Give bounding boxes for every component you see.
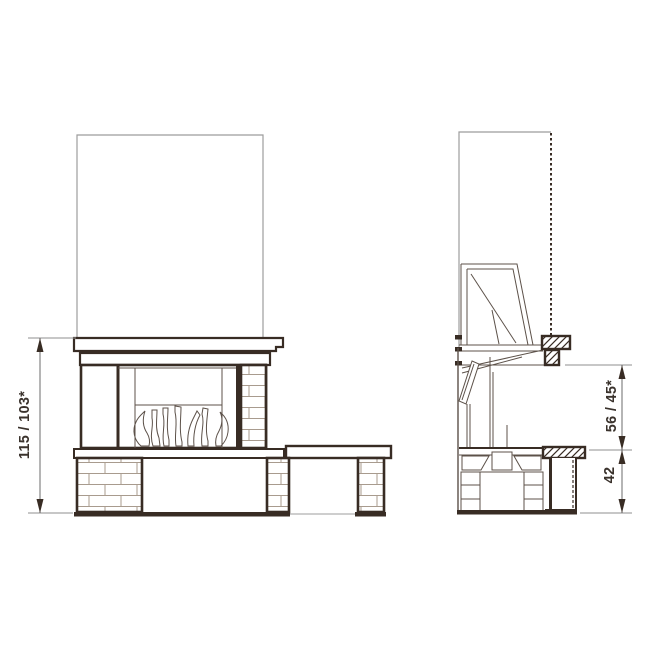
front-bench-slab-right	[286, 446, 391, 458]
front-bench-slab-left	[74, 449, 284, 458]
side-flue	[461, 264, 533, 345]
fireplace-drawing	[0, 0, 650, 650]
arrow-down-icon	[37, 499, 44, 513]
side-base-cap	[457, 510, 545, 515]
front-chimney-hood	[77, 135, 263, 340]
front-under-mantel-band	[80, 353, 270, 365]
dimension-label-side-lower: 42	[600, 445, 620, 505]
dimension-left-height	[28, 338, 76, 513]
drawing-canvas: 115 / 103* 56 / 45* 42	[0, 0, 650, 650]
front-base-cap-left	[74, 512, 290, 517]
front-base-right-pillar	[358, 458, 384, 512]
dimension-label-total-height: 115 / 103*	[15, 345, 35, 505]
side-firebox-profile	[459, 357, 507, 449]
side-mantel-section	[542, 336, 570, 365]
front-view	[74, 135, 391, 517]
side-view	[455, 132, 585, 515]
side-bench-section	[543, 447, 585, 515]
front-base-cap-right	[355, 512, 386, 517]
front-brick-column	[241, 365, 266, 448]
front-mantel-shelf	[74, 338, 283, 351]
arrow-up-icon	[37, 338, 44, 352]
side-chimney	[459, 132, 551, 348]
front-base-left-brick	[77, 458, 142, 512]
front-base-middle-pillar	[267, 458, 289, 512]
side-plinth	[459, 448, 543, 512]
